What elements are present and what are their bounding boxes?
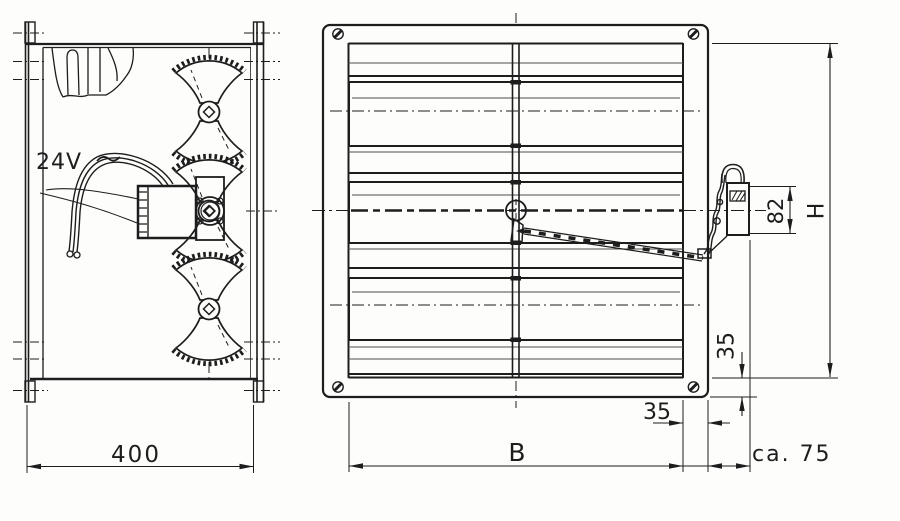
dim-ca75: ca. 75: [708, 442, 832, 469]
corner-screw-icon: [333, 382, 343, 392]
gear-sector-middle: [173, 156, 245, 266]
cable-lug: [67, 251, 73, 257]
louver-breakout-sketch: [52, 48, 133, 97]
arrowhead: [708, 420, 722, 425]
arrowhead: [827, 363, 832, 377]
motor-body: [138, 186, 196, 238]
arrowhead: [739, 364, 744, 378]
arrowhead: [669, 420, 683, 425]
corner-screw-icon: [688, 29, 698, 39]
side-view: 24V 400: [13, 22, 280, 473]
side-frame: [13, 22, 280, 402]
technical-drawing-page: 24V 400: [0, 0, 900, 521]
arrowhead: [739, 397, 744, 411]
arrowhead: [708, 463, 722, 468]
drive-linkage: [516, 228, 703, 261]
arrowhead: [787, 219, 792, 233]
signal-wire: [40, 193, 137, 223]
arrowhead: [787, 187, 792, 201]
dim-400-label: 400: [111, 442, 161, 468]
dim-35-vertical-label: 35: [715, 332, 740, 360]
arrowhead: [349, 463, 363, 468]
slat-band: [349, 278, 683, 340]
threaded-rod: [704, 174, 722, 254]
dim-35-horizontal: 35: [643, 400, 730, 426]
front-view: H 82 35 35: [312, 13, 838, 472]
corner-screw-icon: [333, 29, 343, 39]
arrowhead: [827, 44, 832, 58]
corner-screw-icon: [688, 382, 698, 392]
slat-band: [349, 82, 683, 146]
dim-35-horizontal-label: 35: [643, 400, 671, 425]
pivot-bolt: [714, 218, 720, 224]
slat-band: [349, 182, 683, 243]
actuator-front: [698, 165, 749, 259]
arrowhead: [736, 463, 750, 468]
dim-400: 400: [27, 405, 254, 473]
dim-B-label: B: [508, 438, 525, 467]
cable-lug: [74, 252, 80, 258]
dim-B: B: [349, 240, 750, 472]
arrowhead: [27, 464, 41, 469]
damper-drawing-svg: 24V 400: [0, 0, 900, 521]
mounting-hole-centerlines: [13, 33, 280, 391]
dim-ca75-label: ca. 75: [752, 442, 832, 467]
gear-sector-top: [173, 57, 245, 167]
arrowhead: [240, 464, 254, 469]
gear-sector-bottom: [173, 254, 245, 364]
dim-H-label: H: [805, 203, 830, 220]
dim-82-label: 82: [764, 198, 788, 225]
label-24v: 24V: [36, 150, 82, 175]
arrowhead: [669, 463, 683, 468]
